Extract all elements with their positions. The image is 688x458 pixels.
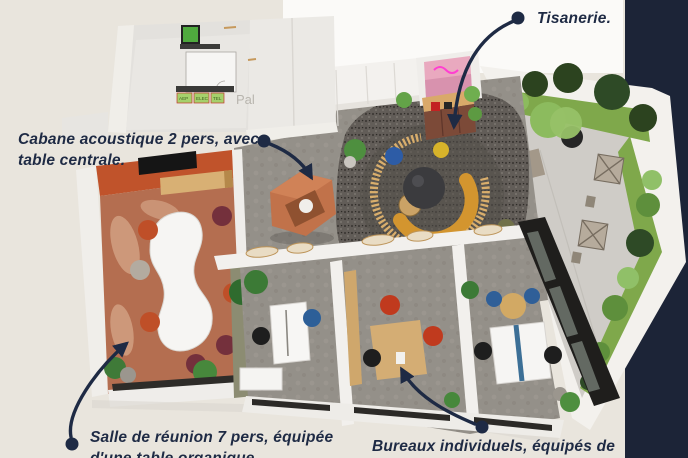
annotation-tisanerie: Tisanerie. (537, 8, 611, 29)
individual-offices (214, 224, 580, 438)
annotation-text: Salle de réunion 7 pers, équipée (90, 427, 333, 448)
callout-dot-icon (476, 421, 489, 434)
annotation-cabane: Cabane acoustique 2 pers, avec table cen… (18, 129, 259, 171)
blue-chair (303, 309, 321, 327)
office-chair (252, 327, 270, 345)
office-chair (544, 346, 562, 364)
office-chair (474, 342, 492, 360)
plant (464, 86, 480, 102)
page-canvas: AEP ELEC TEL Pal (0, 0, 688, 458)
utility-meters: AEP ELEC TEL (177, 93, 224, 103)
annotation-text: Cabane acoustique 2 pers, avec (18, 129, 259, 150)
palier-floor-label: Pal (236, 92, 255, 107)
parasol-table (578, 220, 608, 250)
white-desk (270, 302, 310, 364)
plant (396, 92, 412, 108)
coffee-machine (431, 102, 440, 111)
tisanerie-counter (416, 50, 482, 140)
yellow-pouf (433, 142, 449, 158)
annotation-text: Tisanerie. (537, 8, 611, 29)
round-table (500, 293, 526, 319)
annotation-text: Bureaux individuels, équipés de (372, 436, 615, 457)
red-chair (380, 295, 400, 315)
plant (244, 270, 268, 294)
parasol-table (594, 154, 624, 184)
elevator-marker (182, 26, 199, 43)
booth-table (299, 199, 313, 213)
palier-area: AEP ELEC TEL Pal (62, 16, 338, 142)
meter-label: AEP (179, 96, 188, 101)
annotation-salle: Salle de réunion 7 pers, équipée d'une t… (90, 427, 333, 458)
annotation-text: table centrale. (18, 150, 259, 171)
blue-pouf (385, 147, 403, 165)
office-chair (363, 349, 381, 367)
meter-label: TEL (213, 96, 222, 101)
annotation-bureaux: Bureaux individuels, équipés de (372, 436, 615, 457)
office-floorplan-render: AEP ELEC TEL Pal (0, 0, 688, 458)
callout-dot-icon (66, 438, 79, 451)
wood-desk (370, 320, 427, 380)
callout-dot-icon (258, 135, 271, 148)
annotation-text: d'une table organique (90, 448, 333, 458)
pendant-sphere (403, 167, 445, 209)
meter-label: ELEC (196, 96, 209, 101)
red-chair (423, 326, 443, 346)
